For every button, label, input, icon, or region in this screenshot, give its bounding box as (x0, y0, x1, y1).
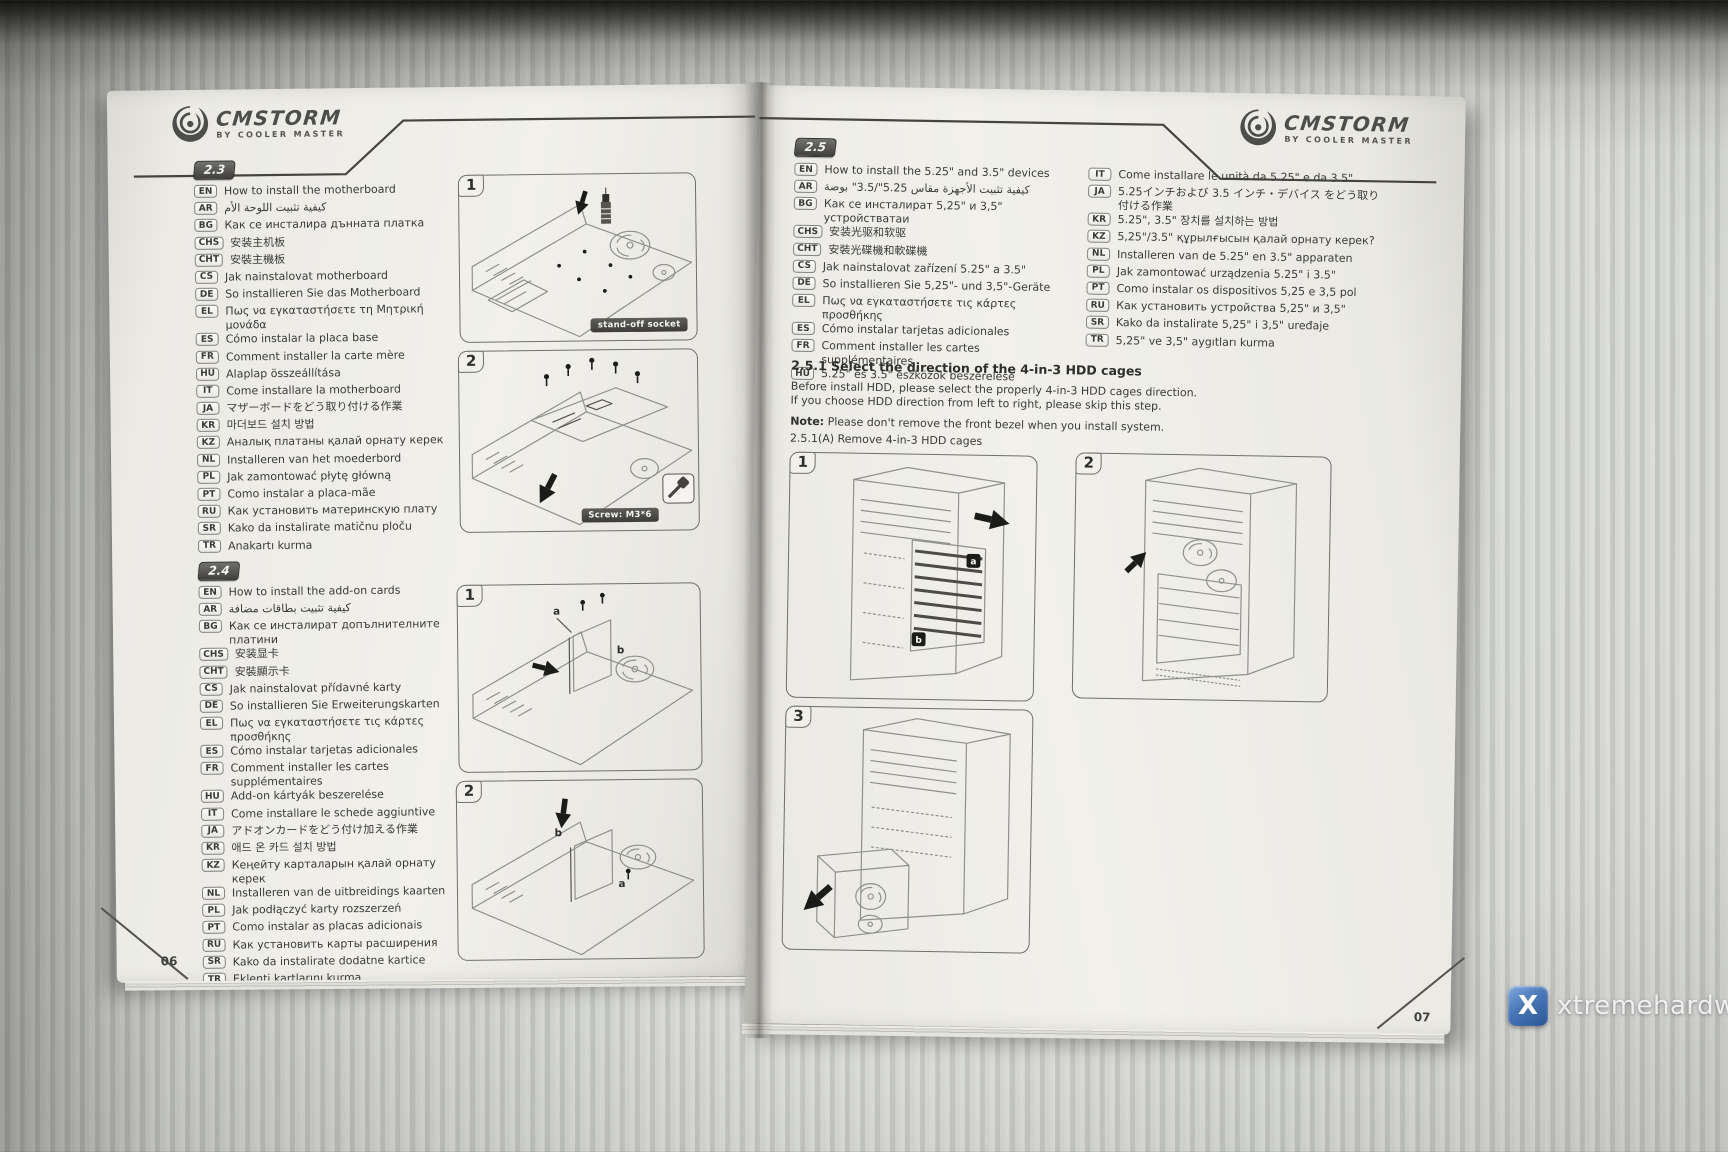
language-code-badge: KR (197, 419, 220, 432)
language-code-badge: NL (197, 453, 220, 466)
addon-card-screw-drawing: b a (457, 779, 704, 960)
language-code-badge: FR (196, 350, 219, 363)
language-code-badge: SR (198, 522, 221, 535)
language-code-badge: EL (200, 717, 223, 730)
figure-motherboard-screws: 2 Screw: M3*6 (458, 348, 700, 533)
figure-addon-card-2: b a 2 (456, 778, 705, 961)
language-list-2-5-right: IT Come installare le unità da 5.25" e d… (1085, 167, 1418, 355)
language-code-badge: AR (199, 603, 222, 616)
language-row-text: 애드 온 카드 설치 방법 (231, 839, 336, 855)
language-code-badge: CHS (195, 236, 224, 249)
language-code-badge: ES (196, 333, 219, 346)
standoff-socket-label: stand-off socket (591, 317, 688, 332)
figure-caption-2-5-1A: 2.5.1(A) Remove 4-in-3 HDD cages (790, 432, 982, 448)
language-code-badge: CHT (793, 242, 821, 255)
brand-name: CMSTORM (1283, 112, 1414, 134)
language-row-text: Jak nainstalovat motherboard (225, 268, 388, 284)
down-arrow-icon (572, 189, 593, 217)
language-code-badge: IT (1088, 168, 1111, 181)
language-row-text: Kako da instalirate matičnu ploču (228, 519, 412, 536)
language-code-badge: HU (196, 367, 219, 380)
language-code-badge: PT (202, 921, 225, 934)
tower-cage-out-drawing (783, 707, 1033, 953)
svg-text:a: a (970, 557, 976, 567)
language-code-badge: NL (1087, 247, 1110, 260)
language-row-text: Kako da instalirate 5,25" i 3,5" uređaje (1116, 315, 1329, 333)
language-code-badge: KZ (202, 859, 225, 872)
brand-text: CMSTORM BY COOLER MASTER (1284, 112, 1413, 145)
language-code-badge: HU (201, 790, 224, 803)
xtremehardware-watermark: X xtremehardware.com (1508, 986, 1728, 1026)
language-row-text: So installieren Sie Erweiterungskarten (230, 696, 440, 713)
language-list-2-5-left: EN How to install the 5.25" and 3.5" dev… (791, 162, 1077, 388)
language-row-text: Как установить устройства 5,25" и 3,5" (1116, 298, 1346, 316)
language-row-text: Jak zamontować płytę główną (227, 468, 391, 484)
language-row-text: 安装主机板 (230, 234, 285, 249)
language-code-badge: KR (1088, 213, 1111, 226)
note-label: Note: (790, 415, 824, 429)
language-row-text: Installeren van de 5.25" en 3.5" apparat… (1117, 247, 1353, 265)
language-code-badge: RU (198, 505, 221, 518)
language-row-text: كيفية تثبيت الأجهزة مقاس 5.25"/3.5" بوصة (824, 179, 1030, 197)
language-row-text: Eklenti kartlarını kurma (233, 970, 362, 986)
language-row-text: Comment installer la carte mère (226, 347, 405, 364)
figure-number: 1 (456, 585, 483, 607)
language-code-badge: JA (201, 824, 224, 837)
language-row-text: Comment installer les cartes supplémenta… (230, 758, 462, 789)
language-code-badge: RU (202, 938, 225, 951)
callout-chip-b: b (912, 632, 926, 646)
language-code-badge: BG (194, 219, 217, 232)
figure-number: 3 (785, 706, 812, 728)
cmstorm-swirl-icon (169, 103, 211, 145)
language-row-text: Installeren van het moederbord (227, 450, 401, 466)
manual-page-right: CMSTORM BY COOLER MASTER 2.5 EN How to i… (744, 85, 1465, 1035)
motherboard-install-drawing (459, 349, 699, 532)
manual-booklet: CMSTORM BY COOLER MASTER 2.3 EN How to i… (98, 76, 1471, 1041)
xtremehardware-logo-icon: X (1508, 986, 1548, 1026)
language-code-badge: CHT (199, 665, 227, 678)
language-code-badge: PL (202, 904, 225, 917)
language-row-text: アドオンカードをどう付け加える作業 (231, 821, 418, 838)
language-row: TR Anakartı kurma (198, 536, 460, 556)
language-row-text: Come installare le unità da 5.25" e da 3… (1118, 167, 1353, 185)
addon-card-drawing: a b (458, 583, 702, 772)
language-code-badge: CS (195, 271, 218, 284)
section-badge-2-5: 2.5 (794, 138, 838, 158)
figure-addon-card-1: a b 1 (456, 582, 702, 773)
figure-number: 2 (456, 781, 483, 803)
language-row-text: Alaplap összeállítása (226, 365, 341, 381)
language-code-badge: DE (792, 277, 815, 290)
language-code-badge: PT (197, 488, 220, 501)
language-row: FR Comment installer les cartes suppléme… (200, 758, 462, 789)
figure-number: 2 (458, 351, 485, 373)
language-row-text: Installeren van de uitbreidings kaarten (232, 883, 445, 900)
language-code-badge: RU (1086, 299, 1109, 312)
language-row-text: Jak zamontować urządzenia 5.25" i 3.5" (1117, 264, 1336, 282)
language-code-badge: SR (203, 955, 226, 968)
language-row-text: Como instalar os dispositivos 5,25 e 3,5… (1116, 281, 1356, 299)
press-arrow-icon (554, 798, 573, 829)
language-row-text: Как се инсталират допълнителните платини (229, 616, 461, 647)
language-code-badge: CS (793, 259, 816, 272)
language-code-badge: KZ (197, 436, 220, 449)
language-row-text: Как се инсталират 5,25" и 3,5" устройств… (824, 197, 1076, 229)
language-code-badge: EN (194, 185, 217, 198)
language-row-text: 安裝顯示卡 (235, 663, 290, 678)
manual-page-left: CMSTORM BY COOLER MASTER 2.3 EN How to i… (107, 84, 765, 983)
language-code-badge: EL (195, 305, 218, 318)
language-row-text: How to install the add-on cards (228, 583, 400, 599)
language-code-badge: KZ (1087, 230, 1110, 243)
language-row-text: So installieren Sie 5,25"- und 3,5"-Gerä… (822, 276, 1050, 294)
language-row-text: 安装显卡 (235, 646, 279, 661)
subsection-title: 2.5.1 Select the direction of the 4-in-3… (791, 358, 1415, 383)
install-arrow-icon (532, 470, 563, 507)
tower-case-drawing: a b (787, 453, 1037, 701)
language-row-text: Anakartı kurma (228, 537, 313, 552)
figure-motherboard-standoff: 1 stand-off socket (458, 172, 698, 343)
screw-icons (544, 357, 640, 386)
language-code-badge: EN (794, 163, 817, 176)
language-list-2-4: EN How to install the add-on cards AR كي… (198, 582, 465, 989)
language-code-badge: CHT (195, 253, 223, 266)
language-row-text: マザーボードをどう取り付ける作業 (226, 399, 402, 415)
language-code-badge: PL (1087, 264, 1110, 277)
language-row-text: Как установить карты расширения (232, 935, 437, 952)
language-code-badge: PT (1086, 281, 1109, 294)
language-code-badge: SR (1086, 316, 1109, 329)
callout-letter-a: a (553, 605, 560, 617)
language-row-text: Jak nainstalovat přídavné karty (230, 679, 402, 695)
figure-hdd-cage-remove-2: 2 (1072, 452, 1332, 702)
language-row-text: 安裝光碟機和軟碟機 (828, 242, 927, 258)
page-number-left: 06 (161, 954, 178, 968)
language-row: EL Πως να εγκαταστήσετε τις κάρτες προσθ… (200, 713, 462, 744)
language-code-badge: AR (194, 202, 217, 215)
language-code-badge: BG (794, 197, 817, 210)
language-code-badge: TR (203, 973, 226, 986)
brand-logo: CMSTORM BY COOLER MASTER (169, 101, 345, 145)
language-row-text: Как се инсталира дънната платка (224, 216, 424, 233)
language-row-text: كيفية تثبيت اللوحة الأم (224, 200, 326, 216)
language-code-badge: EL (792, 294, 815, 307)
note-text: Please don't remove the front bezel when… (828, 415, 1165, 434)
language-code-badge: ES (200, 745, 223, 758)
language-row-text: Come installare le schede aggiuntive (231, 804, 435, 821)
language-row-text: Como instalar a placa-mãe (227, 485, 375, 501)
screwdriver-icon (662, 473, 694, 503)
section-badge-2-4: 2.4 (197, 561, 240, 580)
language-row-text: 5.25", 3.5" 장치를 설치하는 방법 (1118, 212, 1279, 229)
language-row-text: Come installare la motherboard (226, 381, 401, 397)
figure-hdd-cage-removed: 3 (782, 706, 1034, 954)
figure-number: 1 (458, 175, 485, 197)
language-row-text: Kako da instalirate dodatne kartice (233, 952, 426, 969)
language-code-badge: FR (200, 762, 223, 775)
callout-chip-a: a (966, 554, 980, 568)
language-code-badge: JA (1088, 185, 1111, 198)
language-row-text: Πως να εγκαταστήσετε τη Μητρική μονάδα (225, 301, 457, 332)
language-code-badge: TR (198, 539, 221, 552)
callout-letter-b: b (617, 644, 625, 656)
brand-name: CMSTORM (215, 107, 345, 128)
language-row-text: كيفية تثبيت بطاقات مضافة (229, 600, 351, 616)
language-row-text: Cómo instalar tarjetas adicionales (230, 742, 418, 759)
language-row-text: Como instalar as placas adicionais (232, 918, 422, 935)
language-code-badge: DE (200, 700, 223, 713)
section-badge-2-3: 2.3 (193, 160, 236, 179)
language-code-badge: CS (200, 682, 223, 695)
language-code-badge: EN (198, 586, 221, 599)
callout-letter-b: b (555, 827, 563, 839)
brand-logo: CMSTORM BY COOLER MASTER (1237, 106, 1413, 151)
language-row-text: Кеңейту карталарын қалай орнату керек (232, 855, 464, 886)
language-row-text: 安装光驱和软驱 (829, 225, 906, 241)
language-row-text: Add-on kártyák beszerelése (231, 787, 384, 803)
callout-letter-a: a (618, 878, 625, 890)
footer-corner-rule (101, 907, 189, 980)
language-row-text: 5,25" ve 3,5" aygıtları kurma (1116, 333, 1275, 350)
language-row-text: Cómo instalar la placa base (226, 330, 379, 346)
language-code-badge: IT (201, 807, 224, 820)
language-row-text: How to install the 5.25" and 3.5" device… (824, 162, 1049, 180)
language-row-text: Аналық платаны қалай орнату керек (227, 433, 444, 450)
language-row-text: 5,25"/3.5" құрылғысын қалай орнату керек… (1117, 229, 1374, 248)
language-row-text: So installieren Sie das Motherboard (225, 285, 420, 302)
language-row-text: Πως να εγκαταστήσετε τις κάρτες προσθήκη… (230, 713, 462, 744)
svg-text:b: b (915, 636, 922, 646)
language-code-badge: KR (201, 842, 224, 855)
language-row-text: Cómo instalar tarjetas adicionales (822, 321, 1010, 339)
page-number-right: 07 (1414, 1010, 1431, 1024)
language-code-badge: JA (196, 402, 219, 415)
cmstorm-swirl-icon (1237, 106, 1280, 149)
language-row: TR Eklenti kartlarını kurma (203, 969, 465, 989)
language-row-text: Как установить материнскую плату (228, 501, 438, 518)
language-code-badge: ES (792, 322, 815, 335)
language-row-text: 마더보드 설치 방법 (227, 417, 315, 432)
language-row-text: Πως να εγκαταστήσετε τις κάρτες προσθήκη… (822, 293, 1074, 325)
figure-number: 1 (789, 452, 816, 474)
language-row-text: How to install the motherboard (224, 182, 396, 198)
language-list-2-3: EN How to install the motherboard AR كيف… (194, 181, 460, 556)
tower-case-drawing (1073, 453, 1331, 701)
language-row-text: Jak nainstalovat zařízení 5.25" a 3.5" (823, 259, 1026, 277)
language-row-text: Jak podłączyć karty rozszerzeń (232, 901, 401, 917)
language-code-badge: TR (1086, 333, 1109, 346)
screw-spec-label: Screw: M3*6 (581, 508, 659, 523)
language-row: BG Как се инсталират допълнителните плат… (199, 616, 461, 647)
language-code-badge: CHS (199, 648, 228, 661)
language-code-badge: IT (196, 385, 219, 398)
language-code-badge: BG (199, 620, 222, 633)
slide-out-arrow-icon (973, 506, 1012, 533)
direction-arrow-icon (1121, 546, 1152, 577)
watermark-text: xtremehardware.com (1557, 991, 1728, 1021)
language-code-badge: CHS (793, 225, 822, 238)
language-code-badge: DE (195, 288, 218, 301)
brand-text: CMSTORM BY COOLER MASTER (216, 107, 345, 139)
language-code-badge: NL (202, 887, 225, 900)
language-row: EL Πως να εγκαταστήσετε τη Μητρική μονάδ… (195, 301, 457, 332)
language-code-badge: FR (791, 339, 814, 352)
subsection-2-5-1: 2.5.1 Select the direction of the 4-in-3… (790, 358, 1415, 438)
language-code-badge: AR (794, 180, 817, 193)
language-row-text: 5.25インチおよび 3.5 インチ・デバイス をどう取り付ける作業 (1118, 184, 1386, 216)
figure-number: 2 (1075, 452, 1102, 474)
language-row-text: 安裝主機板 (230, 252, 285, 267)
motherboard-tray-drawing (459, 173, 697, 342)
language-code-badge: PL (197, 470, 220, 483)
figure-hdd-cage-remove-1: a b 1 (786, 452, 1038, 702)
language-row: KZ Кеңейту карталарын қалай орнату керек (202, 855, 464, 886)
